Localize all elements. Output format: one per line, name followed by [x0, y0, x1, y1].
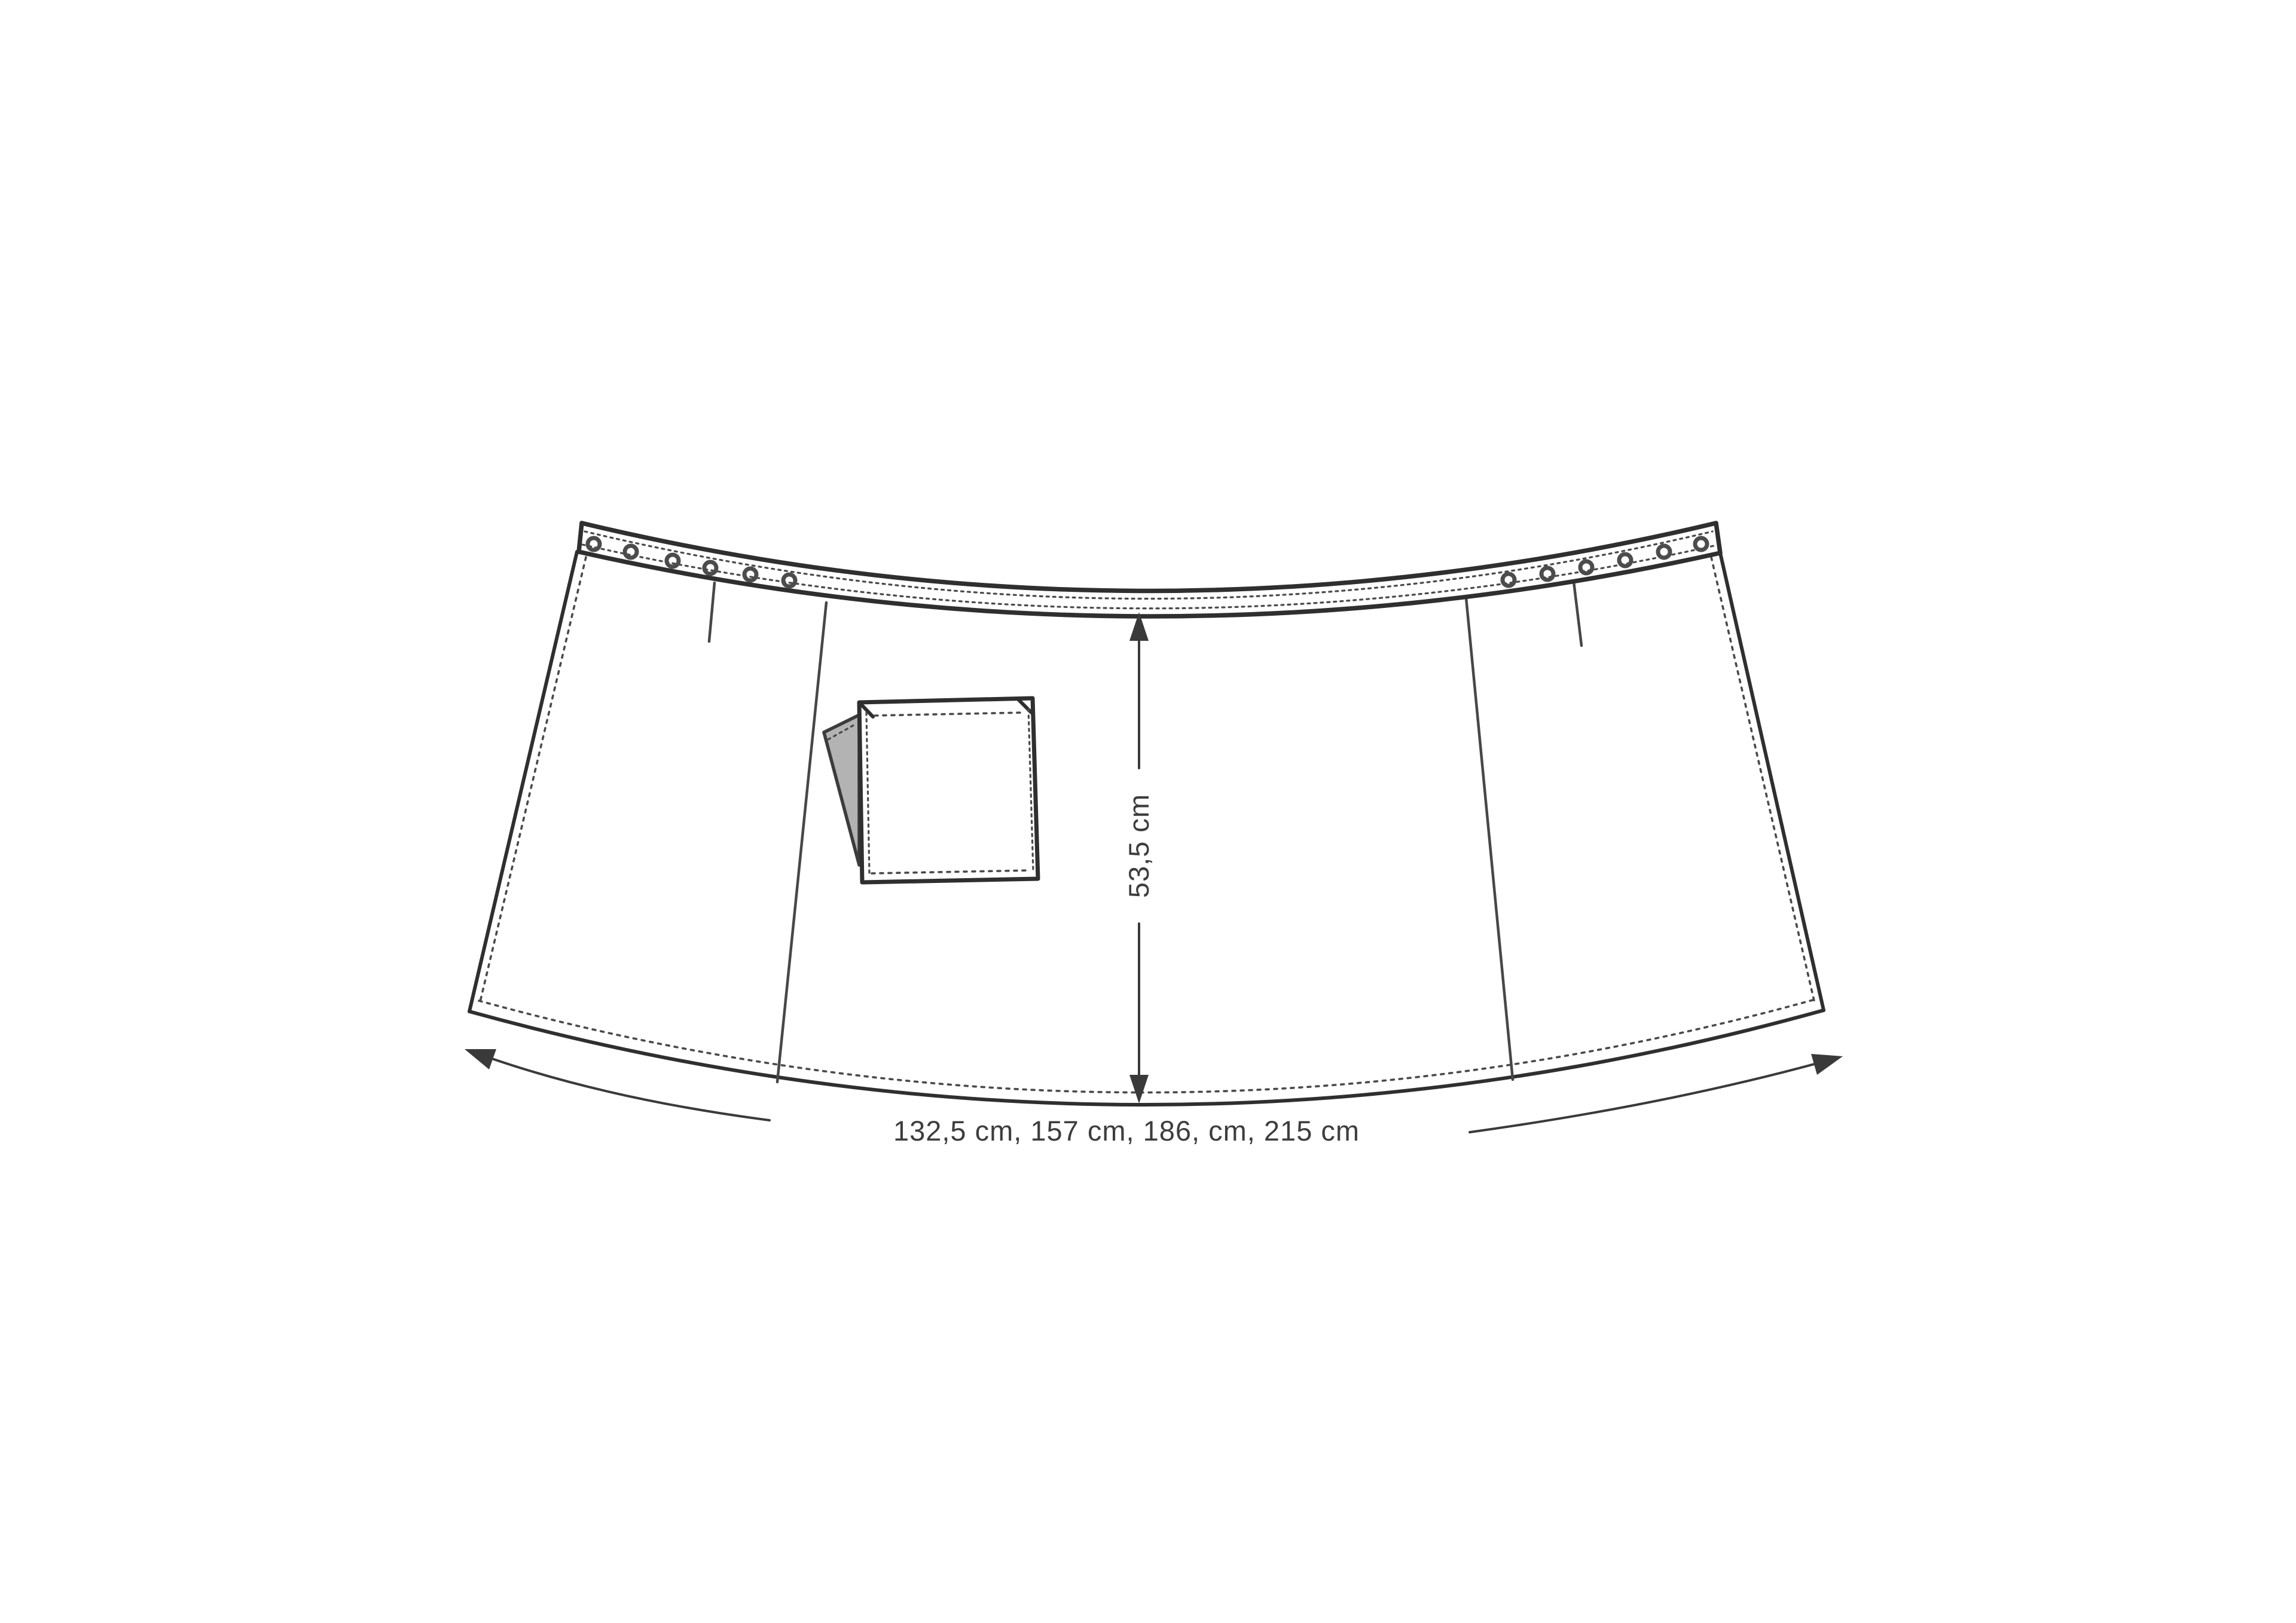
right-dart: [1574, 582, 1581, 646]
hem-edge: [469, 1010, 1824, 1105]
left-dart: [709, 583, 715, 641]
pocket-group: [824, 698, 1038, 882]
eyelet-icon: [1658, 546, 1670, 558]
eyelet-icon: [704, 562, 716, 574]
right-edge: [1720, 553, 1824, 1010]
eyelet-icon: [1503, 574, 1515, 586]
arrow-left-icon: [465, 1049, 496, 1069]
width-dimension-label: 132,5 cm, 157 cm, 186, cm, 215 cm: [893, 1115, 1360, 1147]
eyelet-icon: [1695, 538, 1707, 550]
apron-pattern-diagram: 53,5 cm 132,5 cm, 157 cm, 186, cm, 215 c…: [0, 0, 2296, 1623]
pattern-drawing-canvas: 53,5 cm 132,5 cm, 157 cm, 186, cm, 215 c…: [0, 0, 2296, 1623]
height-dimension-label: 53,5 cm: [1123, 794, 1155, 898]
waistband: [579, 523, 1720, 616]
eyelet-icon: [588, 538, 600, 550]
right-edge-stitch: [1711, 557, 1815, 1003]
waistband-left-end: [579, 523, 582, 552]
width-dimension-line-right: [1470, 1060, 1830, 1132]
waistband-bottom-stitch: [582, 545, 1717, 609]
waistband-bottom-edge: [579, 552, 1720, 616]
right-panel-seam: [1466, 598, 1513, 1080]
left-edge-stitch: [480, 557, 586, 1004]
height-dimension: 53,5 cm: [1123, 612, 1155, 1104]
eyelet-icon: [1580, 561, 1592, 573]
waistband-top-stitch: [585, 531, 1712, 599]
eyelet-icon: [1619, 554, 1631, 566]
eyelet-icon: [625, 546, 637, 558]
pocket: [859, 698, 1038, 882]
left-panel-seam: [777, 603, 826, 1082]
eyelet-icon: [1541, 568, 1553, 580]
waistband-right-end: [1716, 523, 1720, 553]
left-edge: [469, 552, 577, 1011]
eyelet-icon: [744, 568, 756, 580]
eyelet-icon: [783, 574, 795, 586]
eyelet-icon: [667, 555, 679, 567]
width-dimension-line-left: [478, 1054, 770, 1120]
arrow-down-icon: [1129, 1075, 1149, 1104]
pocket-flap: [824, 715, 859, 865]
width-dimension: 132,5 cm, 157 cm, 186, cm, 215 cm: [465, 1049, 1843, 1147]
arrow-right-icon: [1811, 1054, 1843, 1075]
